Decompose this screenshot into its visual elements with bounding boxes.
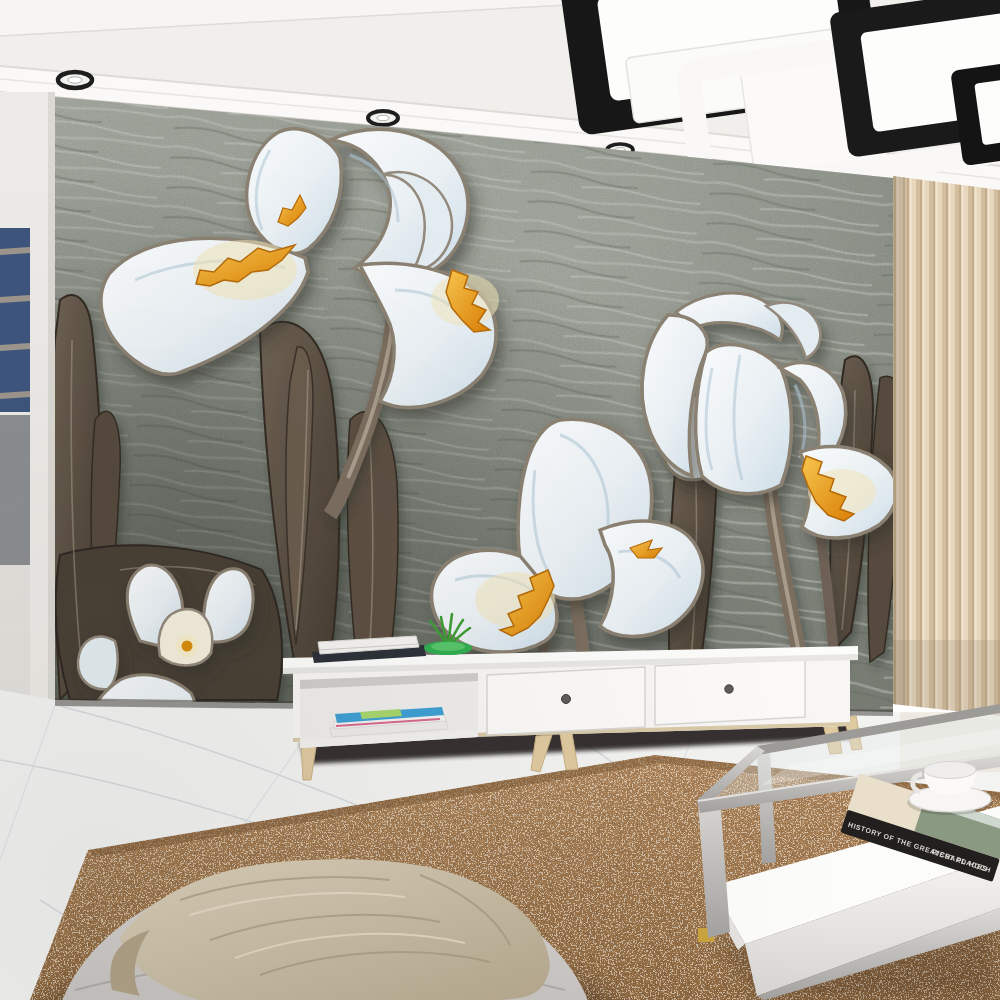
- living-room-photo: HISTORY OF THE GREATEST PLACES RICHARD H…: [0, 0, 1000, 1000]
- scene: HISTORY OF THE GREATEST PLACES RICHARD H…: [0, 0, 1000, 1000]
- vignette: [0, 0, 1000, 1000]
